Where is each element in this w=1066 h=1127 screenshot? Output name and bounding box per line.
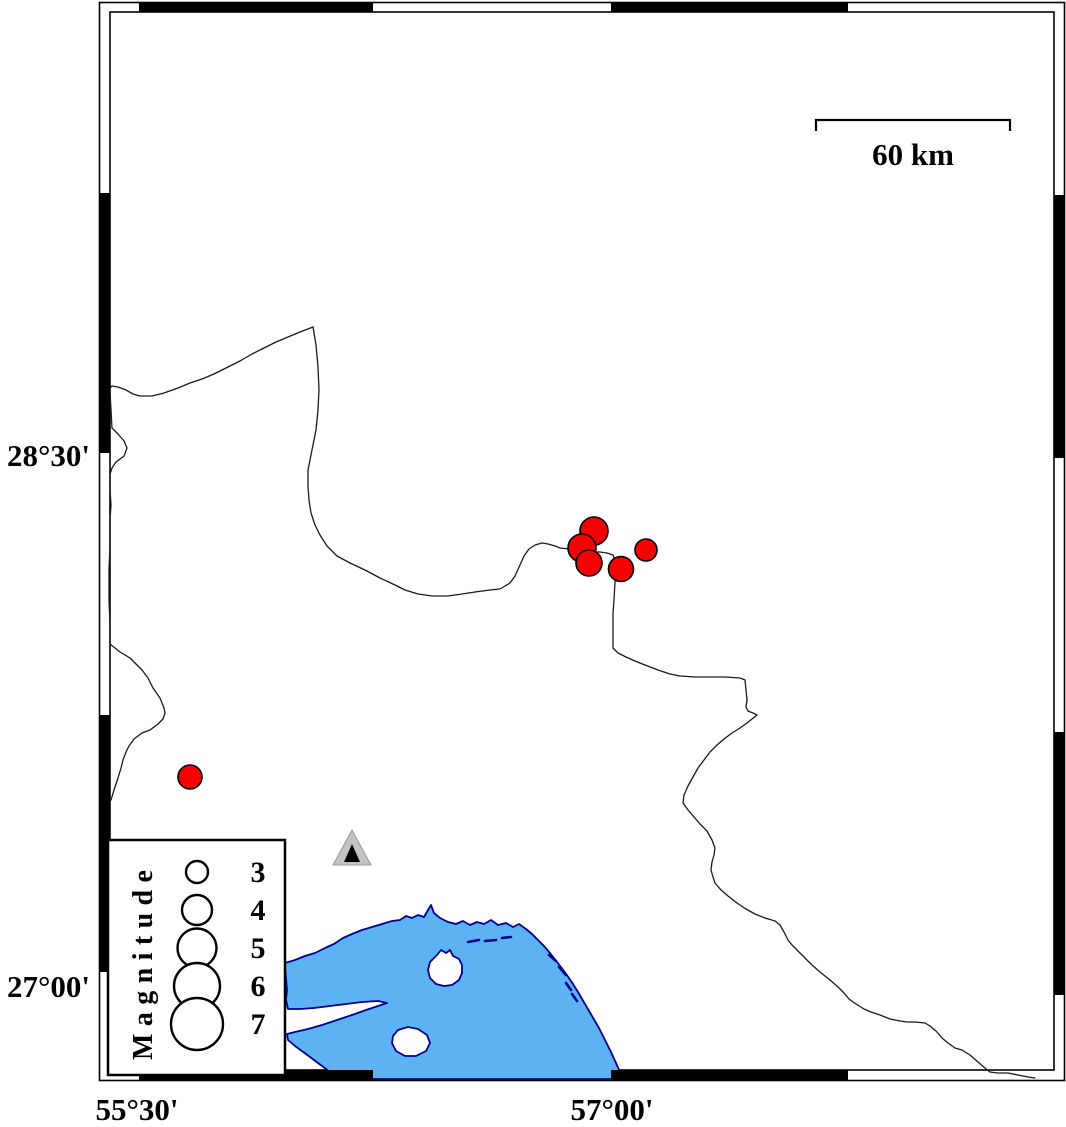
legend-circle-mag-7 (171, 998, 223, 1050)
legend: Magnitude 34567 (108, 840, 285, 1075)
frame-band-bottom (611, 1070, 848, 1081)
legend-title: Magnitude (128, 862, 159, 1060)
lat-label-top: 28°30' (7, 438, 90, 473)
lon-label-right: 57°00' (570, 1092, 653, 1127)
frame-band-left (99, 193, 110, 453)
frame-band-right (1054, 732, 1065, 995)
map-canvas: 60 km Magnitude 34567 28°30' 27°00' 55°3… (0, 0, 1066, 1127)
lon-label-left: 55°30' (95, 1092, 178, 1127)
earthquake-epicenter (609, 557, 634, 582)
frame-band-top (611, 2, 848, 12)
scale-bar-label: 60 km (872, 137, 954, 172)
earthquake-epicenter (635, 539, 657, 561)
legend-circle-mag-5 (178, 929, 217, 968)
legend-magnitude-value: 6 (251, 970, 266, 1003)
legend-magnitude-value: 5 (251, 932, 266, 965)
frame-band-right (1054, 195, 1065, 458)
lat-label-bottom: 27°00' (7, 969, 90, 1004)
legend-magnitude-value: 3 (251, 856, 266, 889)
legend-circle-mag-3 (186, 861, 208, 883)
legend-magnitude-value: 7 (251, 1008, 266, 1041)
legend-circle-mag-4 (182, 895, 212, 925)
legend-magnitude-value: 4 (251, 894, 266, 927)
seismicity-map: 60 km Magnitude 34567 28°30' 27°00' 55°3… (0, 0, 1066, 1127)
frame-band-top (139, 2, 373, 12)
earthquake-epicenter (576, 550, 602, 576)
earthquake-epicenter (178, 765, 202, 789)
